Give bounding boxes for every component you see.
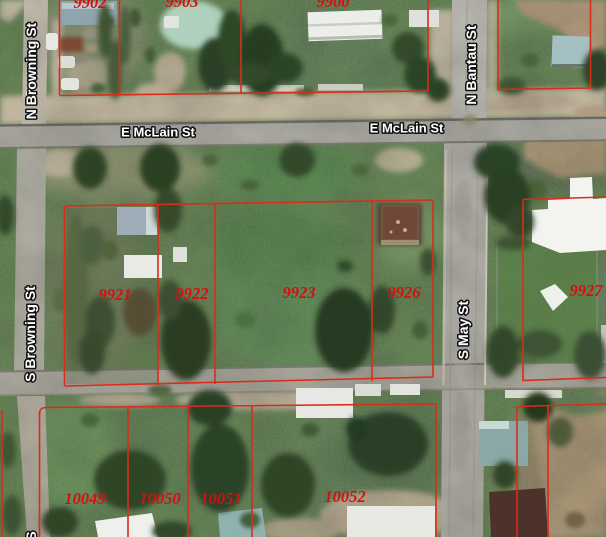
- svg-text:N Bantau St: N Bantau St: [463, 25, 479, 105]
- svg-text:S Browning St: S Browning St: [22, 286, 38, 382]
- svg-text:10050: 10050: [139, 489, 180, 508]
- svg-text:9902: 9902: [74, 0, 107, 12]
- svg-text:9922: 9922: [176, 284, 209, 303]
- svg-text:N Browning St: N Browning St: [23, 22, 39, 119]
- svg-text:9900: 9900: [317, 0, 350, 11]
- svg-text:S May St: S May St: [455, 300, 471, 359]
- svg-text:9926: 9926: [388, 283, 422, 302]
- svg-text:10051: 10051: [200, 489, 241, 508]
- svg-text:E McLain St: E McLain St: [121, 125, 195, 140]
- svg-text:E McLain St: E McLain St: [370, 121, 444, 136]
- svg-text:10052: 10052: [324, 487, 365, 506]
- svg-text:S: S: [23, 531, 39, 537]
- svg-text:10049: 10049: [64, 489, 105, 508]
- svg-text:9923: 9923: [283, 283, 316, 302]
- svg-text:9903: 9903: [166, 0, 199, 11]
- svg-text:9927: 9927: [570, 281, 604, 300]
- svg-text:9921: 9921: [99, 285, 132, 304]
